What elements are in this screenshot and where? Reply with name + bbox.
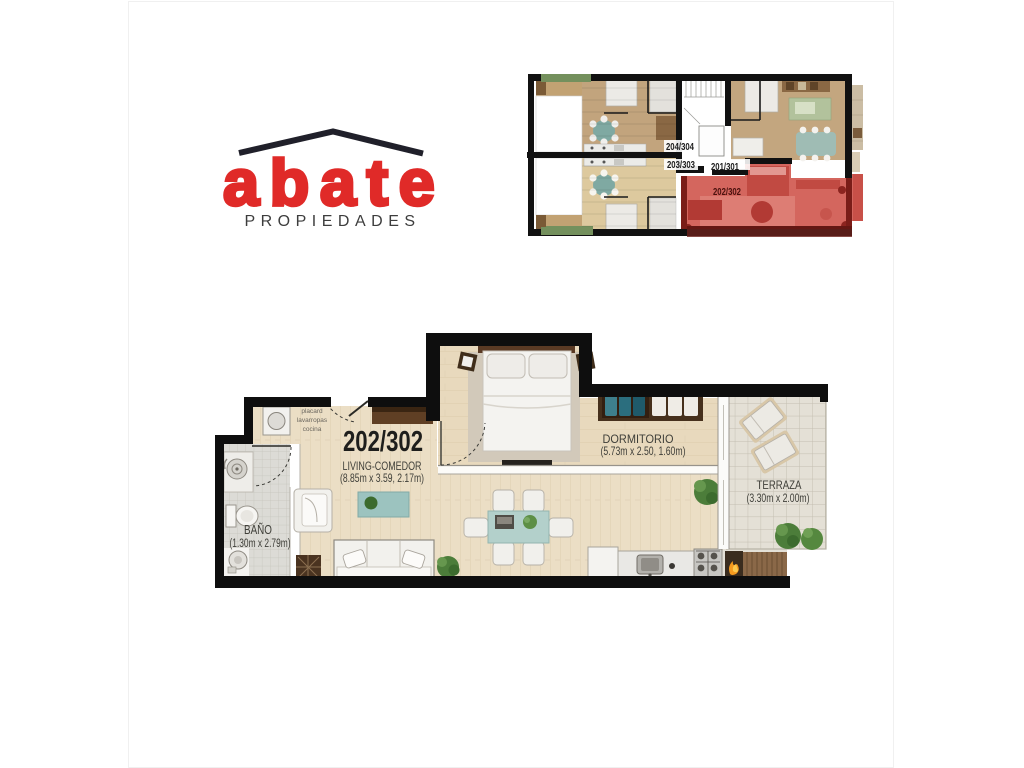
svg-text:lavarropas: lavarropas bbox=[297, 417, 328, 424]
svg-text:203/303: 203/303 bbox=[667, 159, 695, 171]
svg-text:BAÑO: BAÑO bbox=[244, 523, 272, 537]
svg-text:202/302: 202/302 bbox=[713, 186, 741, 198]
svg-text:201/301: 201/301 bbox=[711, 161, 739, 173]
svg-text:204/304: 204/304 bbox=[666, 141, 694, 153]
svg-text:TERRAZA: TERRAZA bbox=[757, 478, 802, 492]
svg-text:(8.85m x 3.59, 2.17m): (8.85m x 3.59, 2.17m) bbox=[340, 471, 424, 485]
svg-text:202/302: 202/302 bbox=[343, 426, 423, 458]
svg-text:(1.30m x 2.79m): (1.30m x 2.79m) bbox=[230, 538, 291, 550]
svg-text:cocina: cocina bbox=[303, 426, 322, 433]
svg-text:(3.30m x 2.00m): (3.30m x 2.00m) bbox=[747, 491, 810, 505]
svg-text:placard: placard bbox=[301, 408, 323, 415]
svg-text:(5.73m x 2.50, 1.60m): (5.73m x 2.50, 1.60m) bbox=[601, 444, 686, 458]
